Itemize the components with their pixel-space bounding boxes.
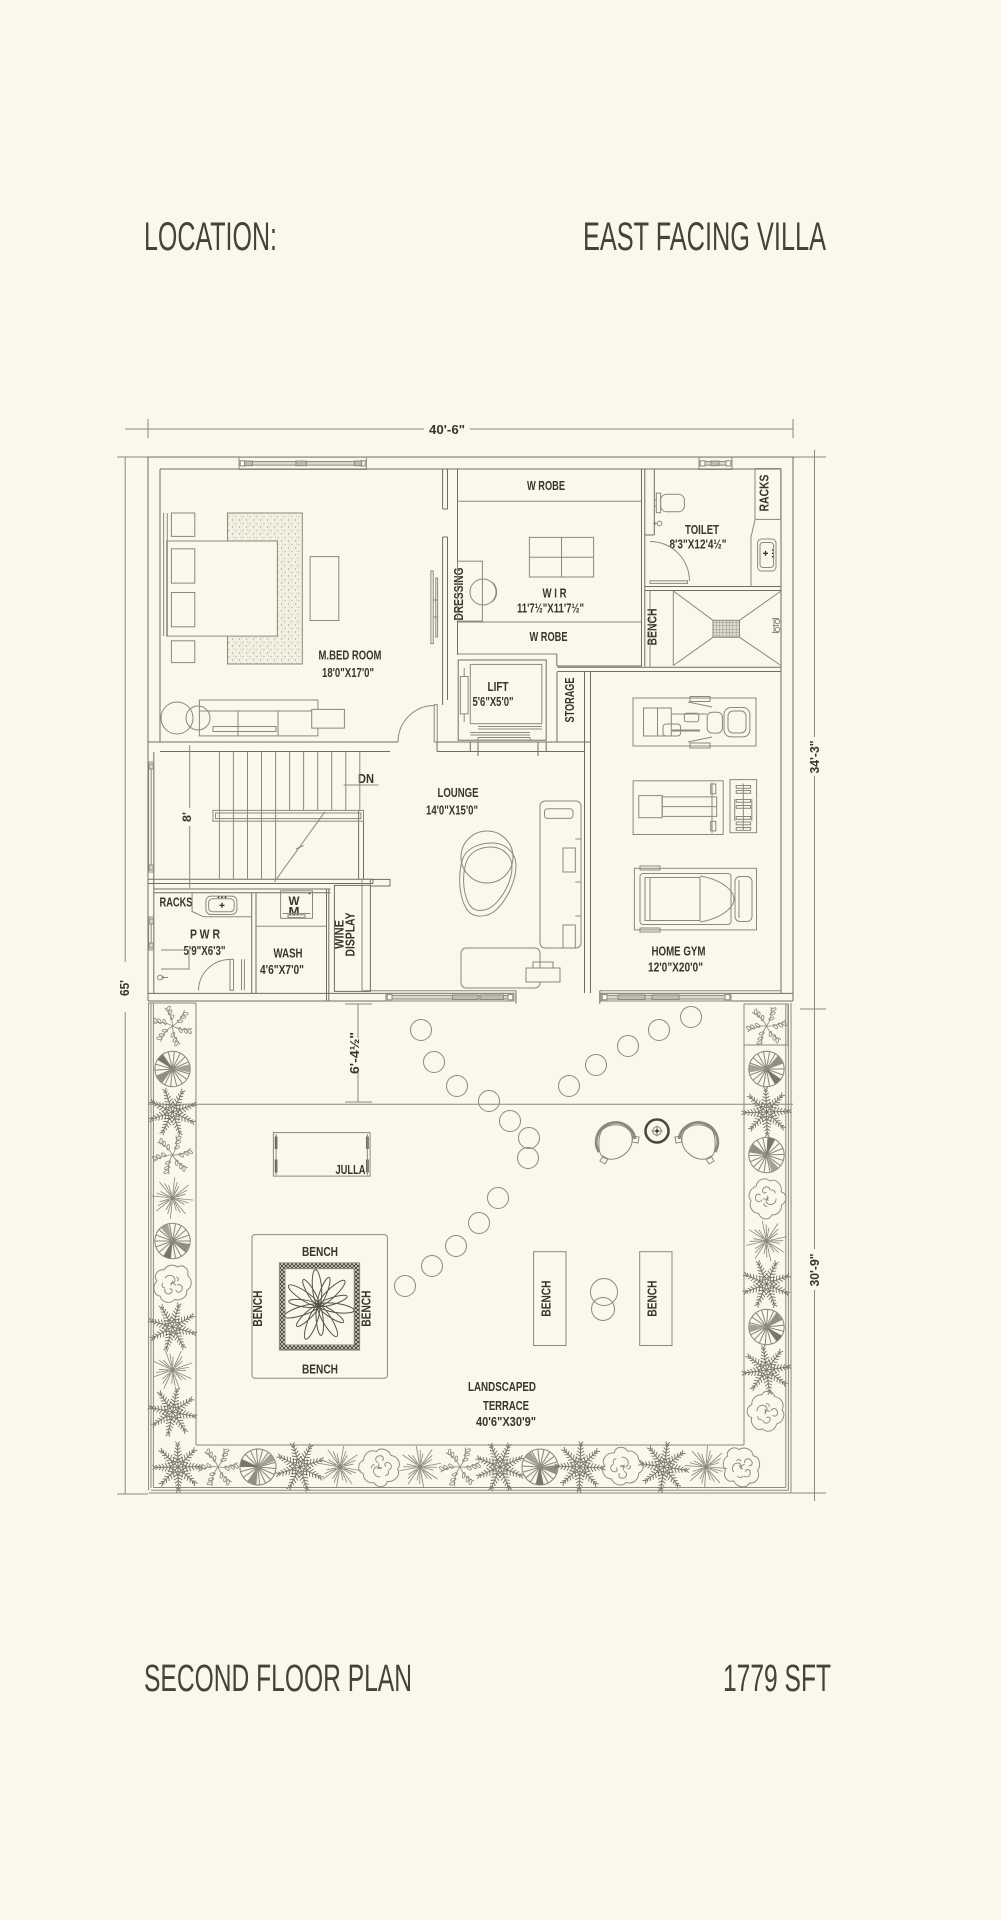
- svg-text:BENCH: BENCH: [358, 1291, 373, 1327]
- svg-text:SECOND FLOOR PLAN: SECOND FLOOR PLAN: [144, 1658, 412, 1700]
- svg-text:BENCH: BENCH: [302, 1361, 338, 1376]
- svg-text:P W R: P W R: [190, 927, 220, 942]
- svg-text:8': 8': [180, 812, 194, 822]
- svg-text:JULLA: JULLA: [336, 1162, 366, 1177]
- svg-text:1779 SFT: 1779 SFT: [723, 1658, 831, 1700]
- svg-text:12'0"X20'0": 12'0"X20'0": [648, 960, 703, 975]
- svg-text:M.BED ROOM: M.BED ROOM: [319, 648, 382, 663]
- svg-text:W ROBE: W ROBE: [527, 478, 565, 493]
- svg-text:M: M: [289, 905, 300, 919]
- svg-text:BENCH: BENCH: [538, 1281, 553, 1317]
- svg-text:DRESSING: DRESSING: [451, 568, 466, 621]
- svg-text:LANDSCAPED: LANDSCAPED: [468, 1379, 536, 1394]
- svg-text:18'0"X17'0": 18'0"X17'0": [322, 665, 374, 680]
- svg-text:30'-9": 30'-9": [807, 1254, 822, 1287]
- svg-text:LIFT: LIFT: [488, 679, 509, 694]
- svg-text:8'3"X12'4½": 8'3"X12'4½": [670, 537, 727, 552]
- svg-text:5'6"X5'0": 5'6"X5'0": [473, 694, 514, 709]
- svg-text:EAST FACING VILLA: EAST FACING VILLA: [583, 215, 826, 259]
- svg-text:BENCH: BENCH: [645, 609, 660, 646]
- svg-text:TERRACE: TERRACE: [483, 1398, 529, 1413]
- svg-text:STORAGE: STORAGE: [562, 677, 577, 722]
- svg-text:W I R: W I R: [543, 586, 567, 601]
- svg-text:W ROBE: W ROBE: [530, 629, 568, 644]
- svg-text:LOCATION:: LOCATION:: [144, 215, 277, 259]
- svg-text:DISPLAY: DISPLAY: [343, 912, 358, 956]
- svg-text:WASH: WASH: [274, 946, 303, 961]
- svg-text:HOME GYM: HOME GYM: [652, 944, 706, 959]
- svg-text:14'0"X15'0": 14'0"X15'0": [426, 803, 478, 818]
- svg-text:34'-3": 34'-3": [807, 741, 822, 774]
- svg-text:BENCH: BENCH: [644, 1281, 659, 1317]
- svg-text:TOILET: TOILET: [685, 522, 719, 537]
- svg-text:4'6"X7'0": 4'6"X7'0": [260, 962, 304, 977]
- svg-text:5'9"X6'3": 5'9"X6'3": [184, 943, 226, 958]
- svg-text:RACKS: RACKS: [757, 474, 772, 511]
- svg-text:40'6"X30'9": 40'6"X30'9": [476, 1414, 536, 1429]
- svg-text:DN: DN: [358, 771, 374, 786]
- svg-text:6'-4½": 6'-4½": [347, 1032, 362, 1074]
- svg-text:LOUNGE: LOUNGE: [438, 785, 479, 800]
- svg-text:BENCH: BENCH: [302, 1244, 338, 1259]
- svg-text:40'-6": 40'-6": [429, 422, 465, 437]
- svg-text:RACKS: RACKS: [160, 895, 193, 910]
- svg-text:11'7½"X11'7½": 11'7½"X11'7½": [517, 601, 584, 616]
- svg-text:BENCH: BENCH: [250, 1291, 265, 1327]
- svg-text:65': 65': [117, 980, 132, 996]
